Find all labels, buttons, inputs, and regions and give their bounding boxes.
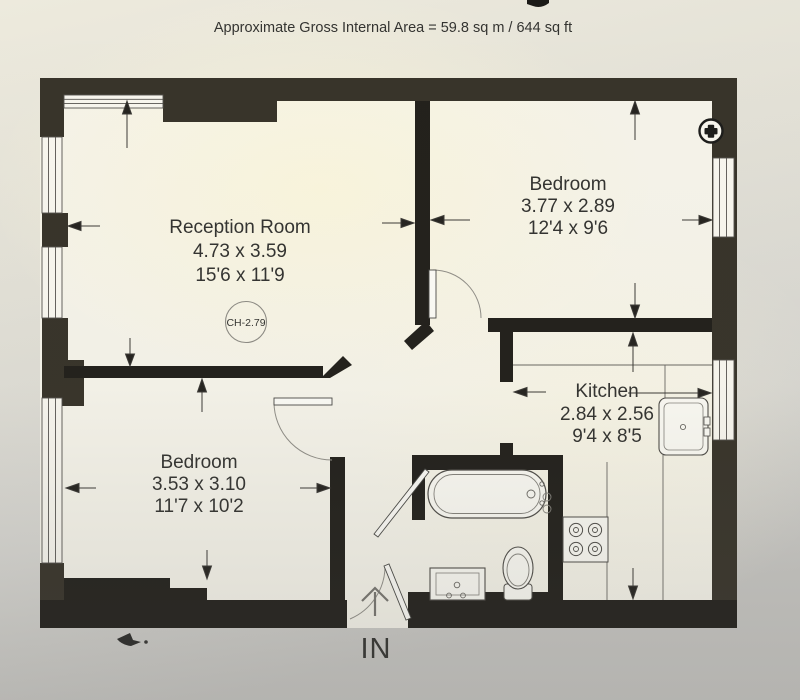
floorplan-photo: CH-2.79 Approximate Gross Internal Area … — [0, 0, 800, 700]
photo-vignette — [0, 0, 800, 700]
floor-plan: CH-2.79 Approximate Gross Internal Area … — [0, 0, 800, 700]
